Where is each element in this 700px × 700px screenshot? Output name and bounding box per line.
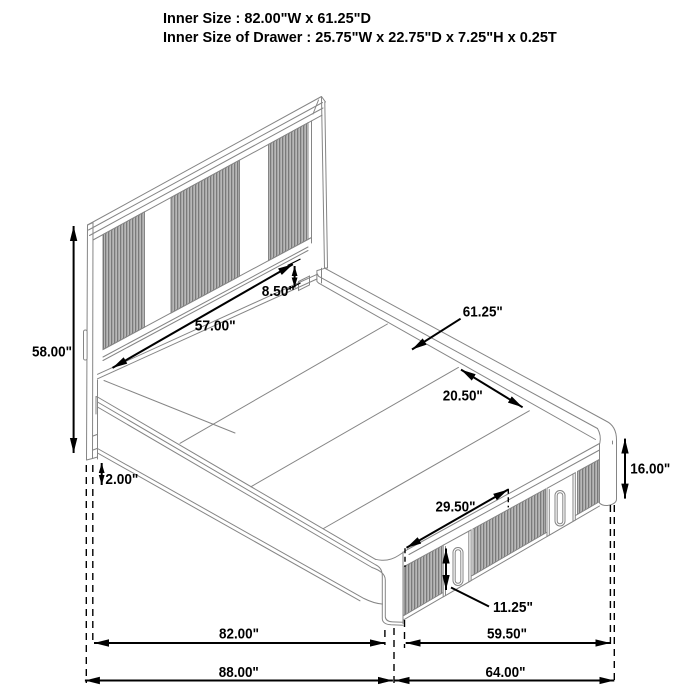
svg-text:16.00": 16.00" bbox=[630, 461, 670, 478]
svg-text:88.00": 88.00" bbox=[219, 664, 259, 681]
svg-text:82.00": 82.00" bbox=[219, 626, 259, 643]
svg-text:59.50": 59.50" bbox=[487, 626, 527, 643]
svg-text:20.50": 20.50" bbox=[443, 388, 483, 405]
svg-text:Inner Size : 82.00"W x 61.25"D: Inner Size : 82.00"W x 61.25"D bbox=[163, 11, 371, 27]
svg-text:8.50": 8.50" bbox=[262, 283, 295, 300]
svg-text:Inner Size of Drawer : 25.75"W: Inner Size of Drawer : 25.75"W x 22.75"D… bbox=[163, 30, 557, 46]
svg-text:29.50": 29.50" bbox=[436, 499, 476, 516]
svg-text:61.25": 61.25" bbox=[463, 304, 503, 321]
svg-text:11.25": 11.25" bbox=[493, 599, 533, 616]
svg-text:57.00": 57.00" bbox=[195, 317, 236, 334]
svg-text:2.00": 2.00" bbox=[105, 471, 138, 488]
svg-text:64.00": 64.00" bbox=[486, 664, 526, 681]
svg-text:58.00": 58.00" bbox=[32, 344, 72, 361]
